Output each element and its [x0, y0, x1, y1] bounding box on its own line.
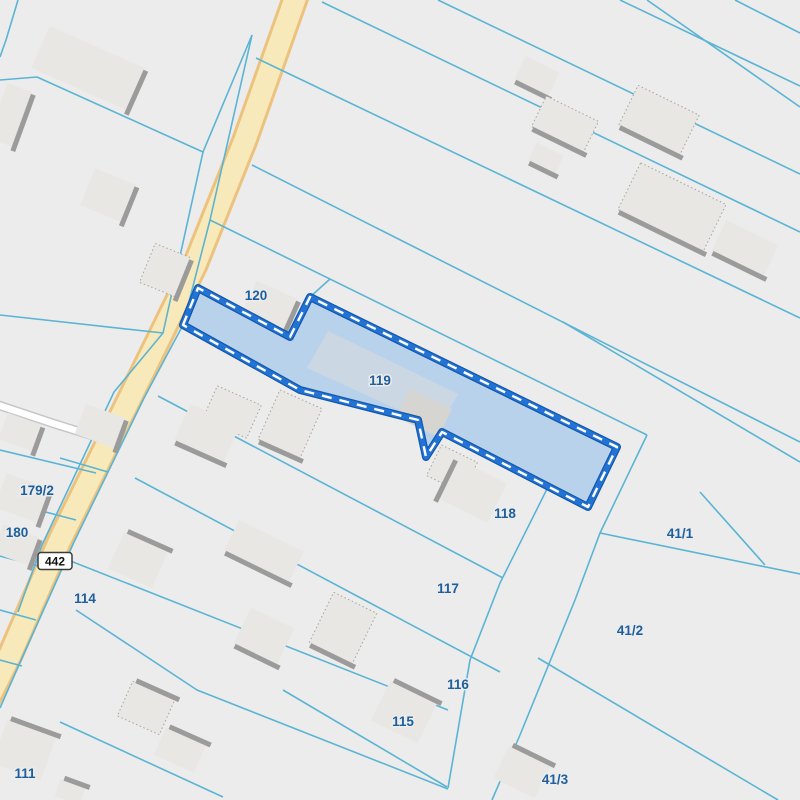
- road-ref-shield-text: 442: [45, 555, 65, 569]
- parcel-label-180[interactable]: 180: [6, 525, 29, 540]
- parcel-label-179-2[interactable]: 179/2: [20, 483, 54, 498]
- parcel-label-41-3[interactable]: 41/3: [542, 772, 569, 787]
- parcel-label-116[interactable]: 116: [447, 677, 469, 692]
- parcel-label-111[interactable]: 111: [14, 766, 36, 781]
- parcel-label-117[interactable]: 117: [437, 581, 459, 596]
- road-ref-shield: 442: [38, 553, 72, 570]
- parcel-label-119[interactable]: 119: [369, 373, 391, 388]
- map-canvas[interactable]: 120119118117116115114111179/218041/141/2…: [0, 0, 800, 800]
- parcel-label-41-1[interactable]: 41/1: [667, 526, 694, 541]
- cadastral-map-svg: 120119118117116115114111179/218041/141/2…: [0, 0, 800, 800]
- parcel-label-114[interactable]: 114: [74, 591, 96, 606]
- parcel-label-41-2[interactable]: 41/2: [617, 623, 643, 638]
- parcel-label-120[interactable]: 120: [245, 288, 268, 303]
- parcel-label-118[interactable]: 118: [494, 506, 516, 521]
- parcel-label-115[interactable]: 115: [392, 714, 414, 729]
